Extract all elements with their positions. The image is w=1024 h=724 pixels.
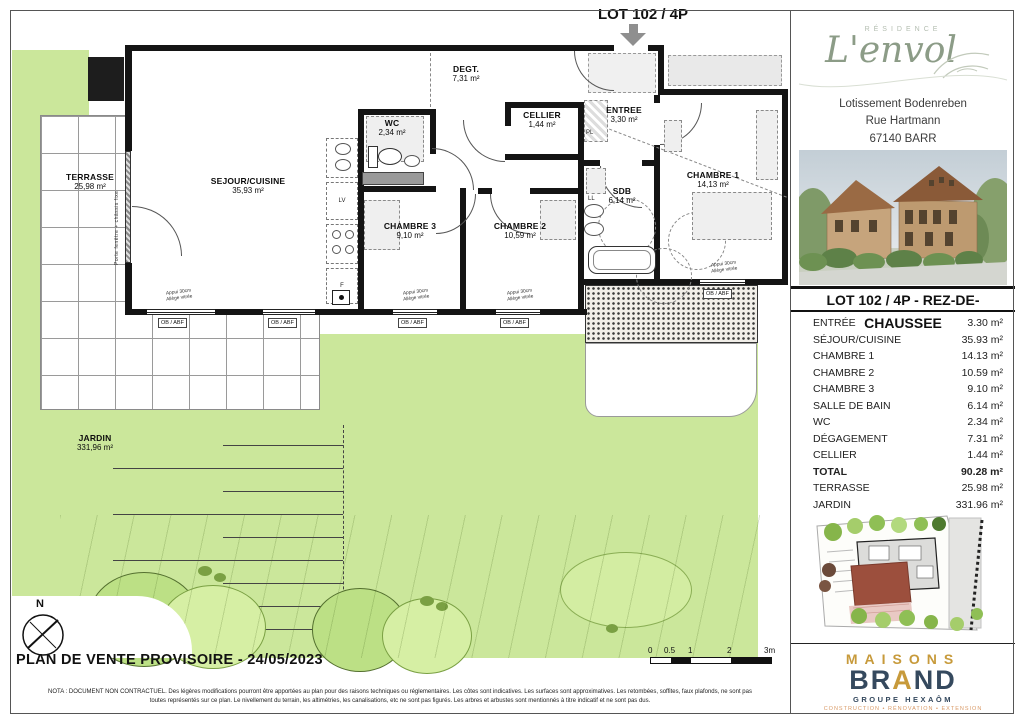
floor-plan-sheet: JARDIN 331,96 m² <box>0 0 1024 724</box>
page-border <box>10 10 1014 714</box>
